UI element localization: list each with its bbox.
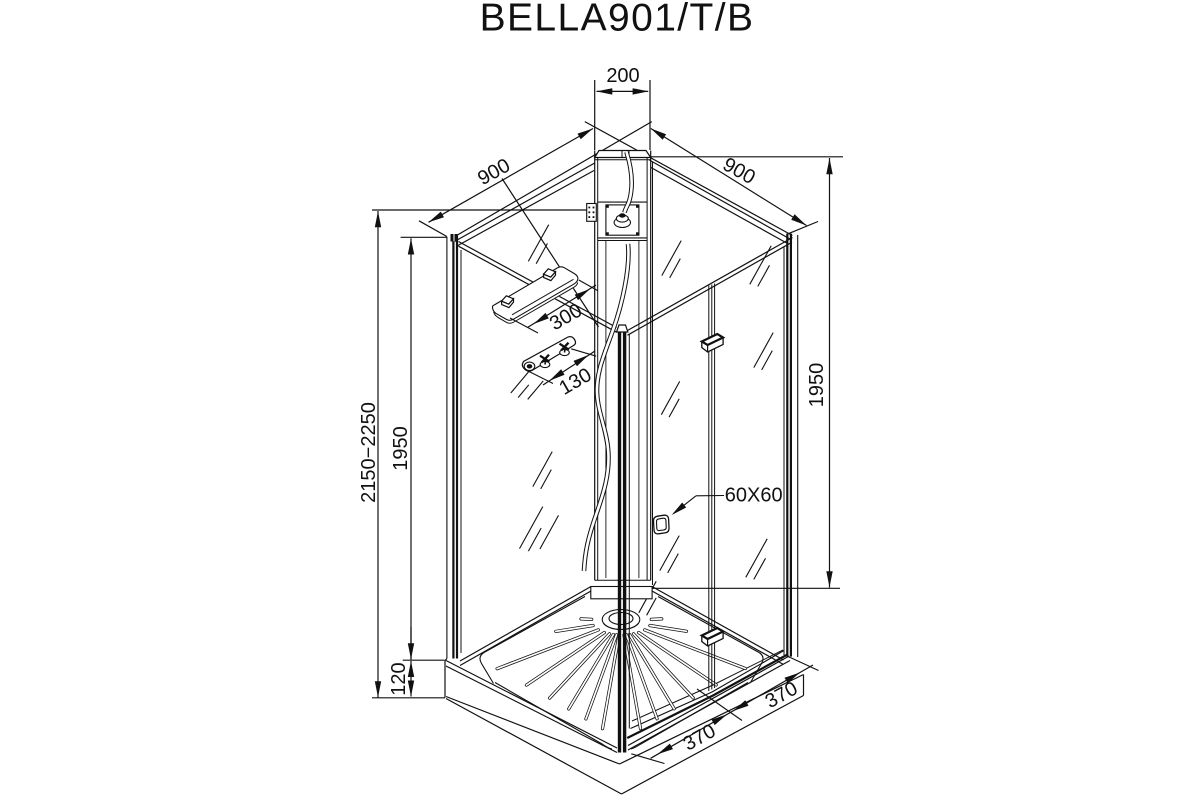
- svg-text:1950: 1950: [390, 426, 412, 471]
- svg-text:200: 200: [606, 65, 639, 87]
- svg-text:2150−2250: 2150−2250: [358, 402, 380, 503]
- svg-text:BELLA901/T/B: BELLA901/T/B: [480, 0, 755, 40]
- svg-text:1950: 1950: [806, 363, 828, 408]
- svg-text:60X60: 60X60: [725, 485, 783, 507]
- svg-text:120: 120: [388, 662, 410, 695]
